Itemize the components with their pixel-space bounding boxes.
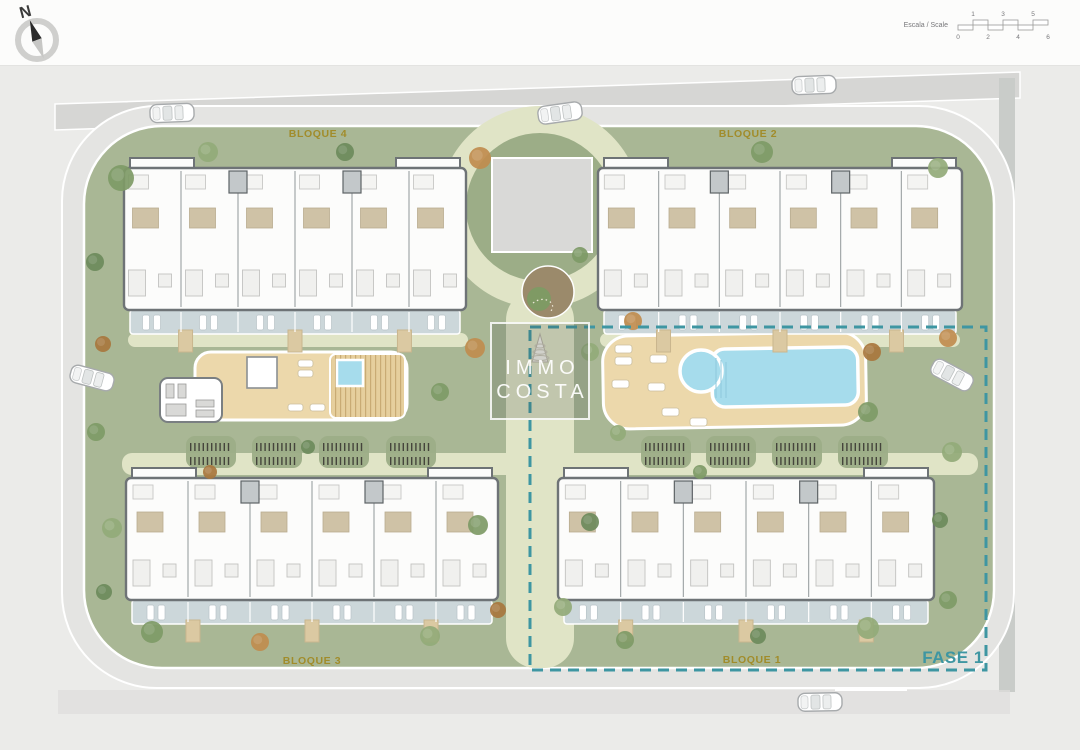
scale-tick: 6 (1046, 34, 1050, 41)
label-bloque-3: BLOQUE 3 (283, 655, 341, 667)
sun-lounger (648, 383, 665, 391)
garden-stair-stub (305, 620, 319, 642)
garden-stair-stub (186, 620, 200, 642)
garden-stair-stub (889, 330, 903, 352)
tree (750, 628, 766, 644)
building-bloque-1 (558, 468, 934, 642)
tree (693, 465, 707, 479)
immo-costa-watermark: IMMO COSTA (490, 322, 590, 420)
sun-lounger (310, 404, 325, 411)
pergola-row (319, 436, 369, 468)
tree (301, 440, 315, 454)
car (792, 75, 837, 95)
building-bloque-3 (126, 468, 498, 642)
garden-stair-stub (773, 330, 787, 352)
garden-stair-stub (288, 330, 302, 352)
tree (490, 602, 506, 618)
tree (863, 343, 881, 361)
tree (102, 518, 122, 538)
pergola-row (641, 436, 691, 468)
car (150, 103, 195, 123)
sun-lounger (298, 370, 313, 377)
tree (96, 584, 112, 600)
north-compass: N (18, 3, 56, 61)
stair-core (832, 171, 850, 193)
tree (251, 633, 269, 651)
scale-bar-segments (958, 20, 1048, 30)
community-room (247, 357, 277, 388)
sun-lounger (690, 418, 707, 426)
tree (87, 423, 105, 441)
pool-area (602, 332, 867, 430)
tree (420, 626, 440, 646)
plaza-building (492, 158, 592, 252)
watermark-line2: COSTA (491, 380, 588, 404)
tree (336, 143, 354, 161)
garden-stair-stub (657, 330, 671, 352)
tree (468, 515, 488, 535)
sun-lounger (612, 380, 629, 388)
tree (86, 253, 104, 271)
garden-bush (527, 287, 551, 311)
compass-north-label: N (18, 3, 34, 22)
sun-lounger (662, 408, 679, 416)
stair-core (343, 171, 361, 193)
tree (141, 621, 163, 643)
spa-area (160, 352, 407, 422)
scale-bar: Escala / Scale 1 3 5 0 2 4 6 (904, 11, 1051, 41)
tree (431, 383, 449, 401)
pergola-row (838, 436, 888, 468)
main-pool (712, 347, 859, 408)
bottom-road-band (58, 690, 1010, 714)
scale-tick: 0 (956, 34, 960, 41)
tree (928, 158, 948, 178)
stair-core (365, 481, 383, 503)
pergola-row (252, 436, 302, 468)
label-bloque-1: BLOQUE 1 (723, 654, 781, 666)
scale-tick: 3 (1001, 11, 1005, 18)
tree (942, 442, 962, 462)
scale-tick: 4 (1016, 34, 1020, 41)
sun-lounger (615, 345, 632, 353)
car (798, 693, 842, 712)
tree (198, 142, 218, 162)
tree (616, 631, 634, 649)
site-plan-canvas: N Escala / Scale 1 3 5 0 2 4 6 IMMO COST… (0, 0, 1080, 750)
tree (572, 247, 588, 263)
tree (581, 513, 599, 531)
sun-lounger (288, 404, 303, 411)
tree (465, 338, 485, 358)
garden-stair-stub (397, 330, 411, 352)
sun-lounger (650, 355, 667, 363)
tree (932, 512, 948, 528)
garden-stair-stub (179, 330, 193, 352)
pergola-row (706, 436, 756, 468)
scale-tick: 2 (986, 34, 990, 41)
label-bloque-4: BLOQUE 4 (289, 128, 347, 140)
tree (554, 598, 572, 616)
building-bloque-2 (598, 158, 962, 352)
tree (858, 402, 878, 422)
tree (203, 465, 217, 479)
stair-core (800, 481, 818, 503)
label-fase-1: FASE 1 (922, 648, 984, 668)
pergola-row (186, 436, 236, 468)
stair-core (241, 481, 259, 503)
tree (469, 147, 491, 169)
scale-tick: 5 (1031, 11, 1035, 18)
tree (751, 141, 773, 163)
spa-pool (337, 360, 363, 386)
tree (939, 329, 957, 347)
pergola-row (386, 436, 436, 468)
scale-tick: 1 (971, 11, 975, 18)
stair-core (710, 171, 728, 193)
scale-bar-label: Escala / Scale (904, 22, 948, 29)
stair-core (674, 481, 692, 503)
tree (857, 617, 879, 639)
label-bloque-2: BLOQUE 2 (719, 128, 777, 140)
tree (939, 591, 957, 609)
pergola-row (772, 436, 822, 468)
sun-lounger (298, 360, 313, 367)
tree (108, 165, 134, 191)
sun-lounger (615, 357, 632, 365)
stair-core (229, 171, 247, 193)
building-bloque-4 (124, 158, 466, 352)
tree (610, 425, 626, 441)
tree (95, 336, 111, 352)
watermark-line1: IMMO (500, 356, 579, 380)
